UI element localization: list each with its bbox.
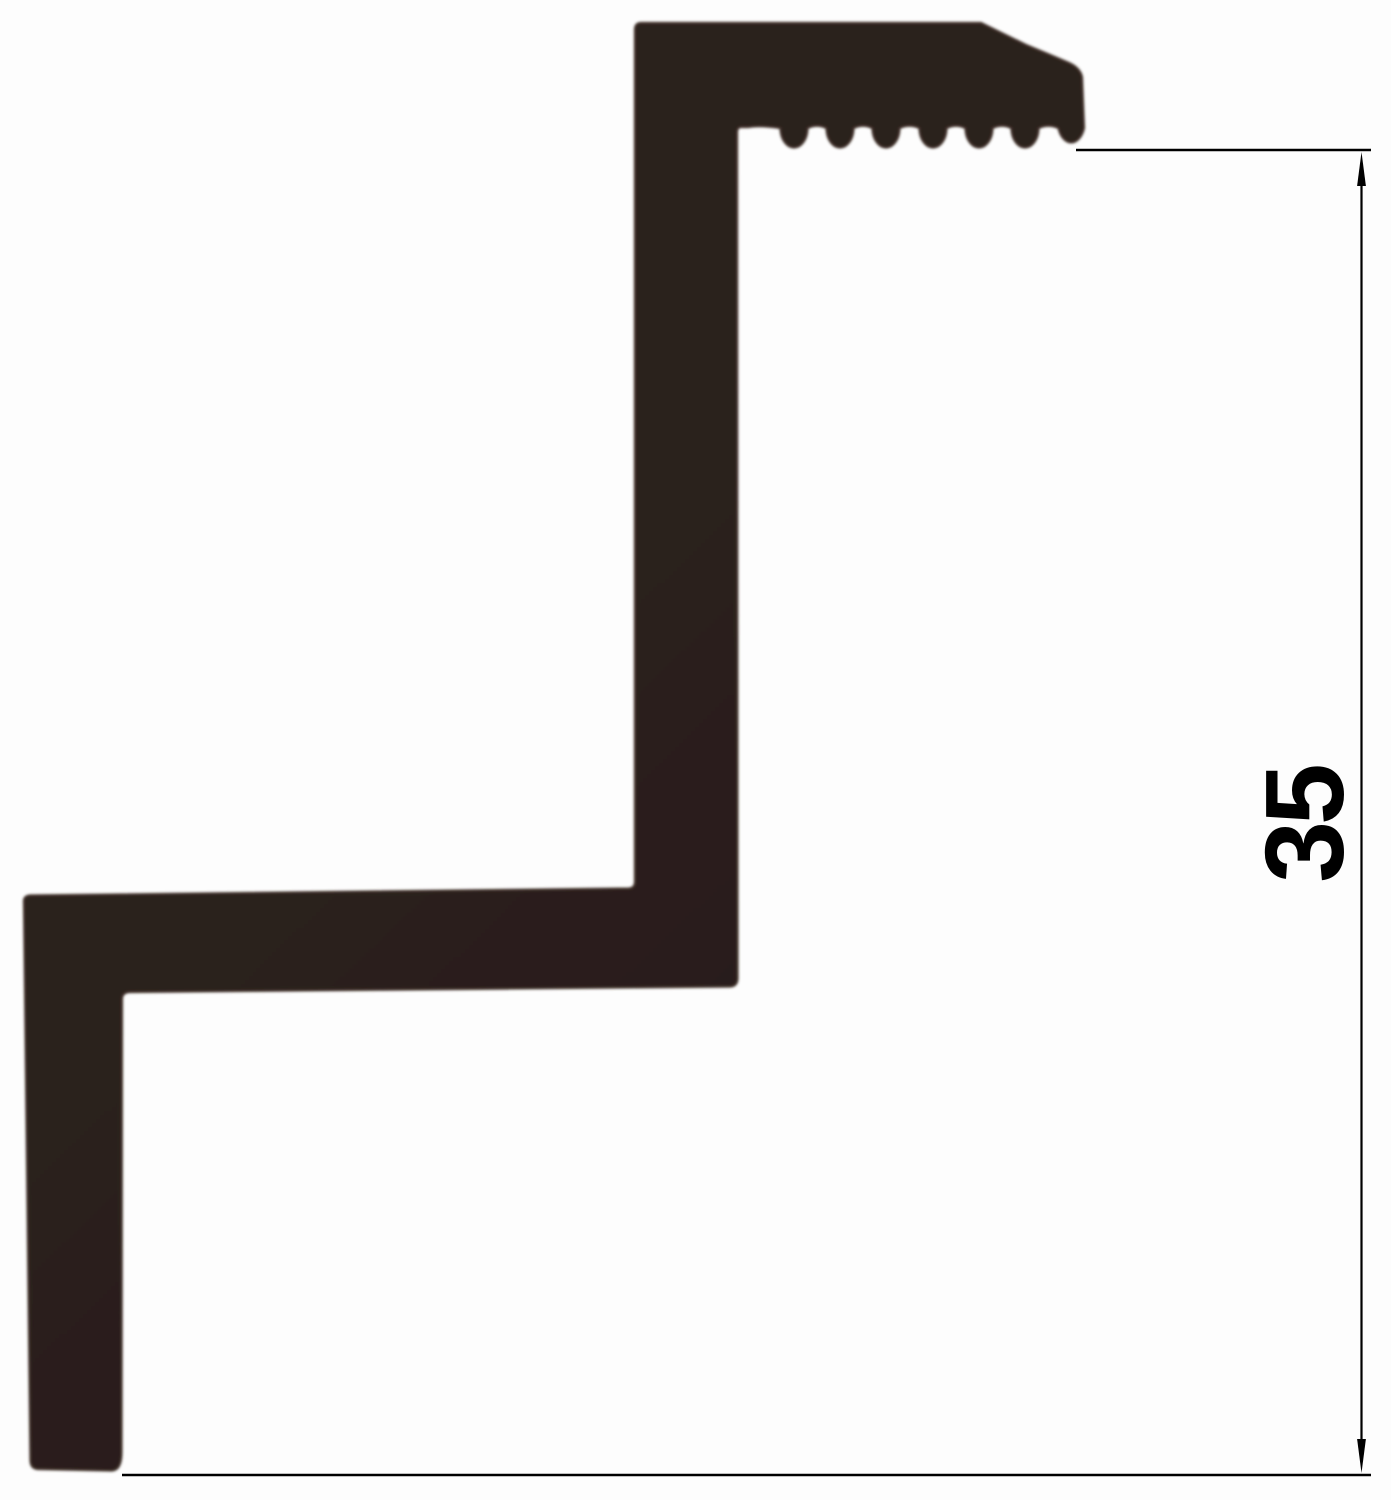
svg-text:35: 35 [1243,766,1367,883]
